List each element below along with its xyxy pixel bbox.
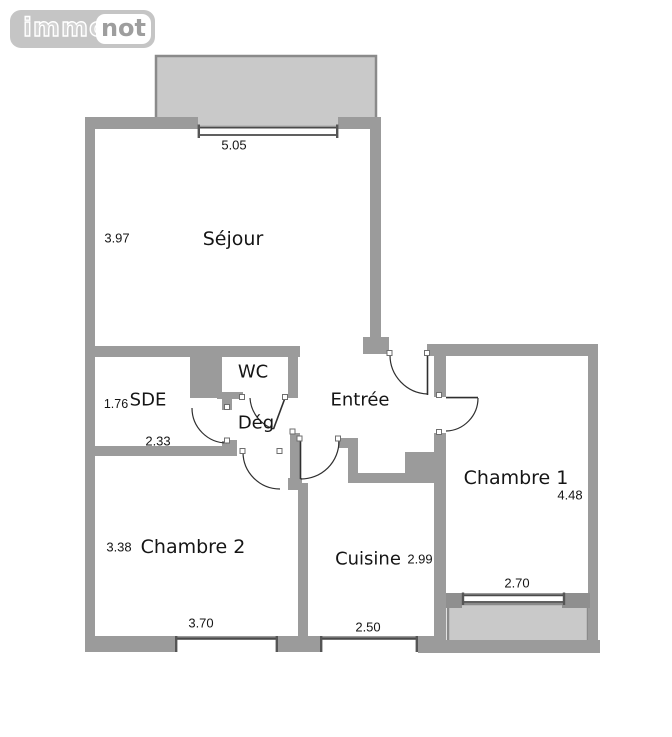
wall-ch2-cuisine-divider	[298, 483, 308, 636]
window-chambre2	[175, 640, 278, 653]
dimension-sejour-width: 5.05	[221, 138, 246, 153]
wall-top-left-seg	[85, 117, 198, 129]
walls	[85, 117, 600, 653]
entrance-door-arc	[390, 355, 428, 394]
dimension-chambre1-height: 4.48	[557, 488, 582, 503]
jamb-cuisine-right	[336, 436, 341, 441]
wall-cuisine-top	[348, 473, 434, 483]
sde-door-arc	[192, 408, 227, 443]
jamb-wc-left	[240, 395, 245, 400]
dimension-chambre1-window: 2.70	[504, 576, 529, 591]
dimension-chambre2-height: 3.38	[106, 540, 131, 555]
dimension-cuisine-depth: 2.99	[407, 552, 432, 567]
floorplan-page: immo not	[0, 0, 672, 737]
dimension-sde-height: 1.76	[104, 397, 128, 411]
door-leaves	[274, 355, 479, 479]
wall-ch1-west-lower	[434, 433, 446, 652]
jamb-chambre1-top	[437, 393, 442, 398]
room-label-entree: Entrée	[331, 390, 390, 411]
dimension-sde-width: 2.33	[145, 434, 170, 449]
dimension-chambre2-width: 3.70	[188, 616, 213, 631]
wall-ch1-top	[427, 344, 598, 356]
wall-wc-left-block	[190, 353, 222, 398]
window-cuisine	[320, 640, 418, 653]
wall-left	[85, 117, 95, 652]
room-label-chambre2: Chambre 2	[141, 536, 246, 558]
wall-bottom-right	[418, 640, 600, 653]
jamb-entrance-left	[387, 351, 392, 356]
wall-sejour-right	[370, 117, 381, 339]
jamb-sde-bottom	[225, 438, 230, 443]
wall-wc-right	[288, 346, 298, 398]
room-label-sejour: Séjour	[203, 228, 264, 250]
balcony-top	[156, 56, 376, 127]
jamb-wc-right	[283, 395, 288, 400]
dimension-cuisine-width: 2.50	[355, 620, 380, 635]
room-label-cuisine: Cuisine	[335, 549, 401, 570]
floorplan-drawing	[0, 0, 672, 737]
jamb-block-left	[446, 593, 462, 608]
jamb-chambre1-bottom	[437, 430, 442, 435]
wall-cuisine-step	[348, 448, 358, 475]
dimension-sejour-height: 3.97	[104, 231, 129, 246]
jamb-entrance-right	[425, 351, 430, 356]
jamb-deg-passage	[290, 429, 295, 434]
room-label-chambre1: Chambre 1	[464, 467, 569, 489]
jamb-cuisine-left	[297, 436, 302, 441]
jamb-chambre2-right	[277, 449, 282, 454]
jamb-chambre2-left	[240, 449, 245, 454]
chambre2-door-arc	[243, 452, 280, 489]
wc-door-leaf	[274, 398, 286, 429]
wall-sejour-cap	[363, 337, 389, 354]
room-label-wc: WC	[238, 362, 268, 383]
jamb-sde-top	[225, 405, 230, 410]
cuisine-door-arc	[301, 441, 340, 479]
room-label-sde: SDE	[130, 390, 167, 411]
chambre1-door-arc	[446, 398, 478, 431]
jamb-block-right	[562, 593, 590, 608]
room-label-deg: Dég	[238, 413, 274, 434]
